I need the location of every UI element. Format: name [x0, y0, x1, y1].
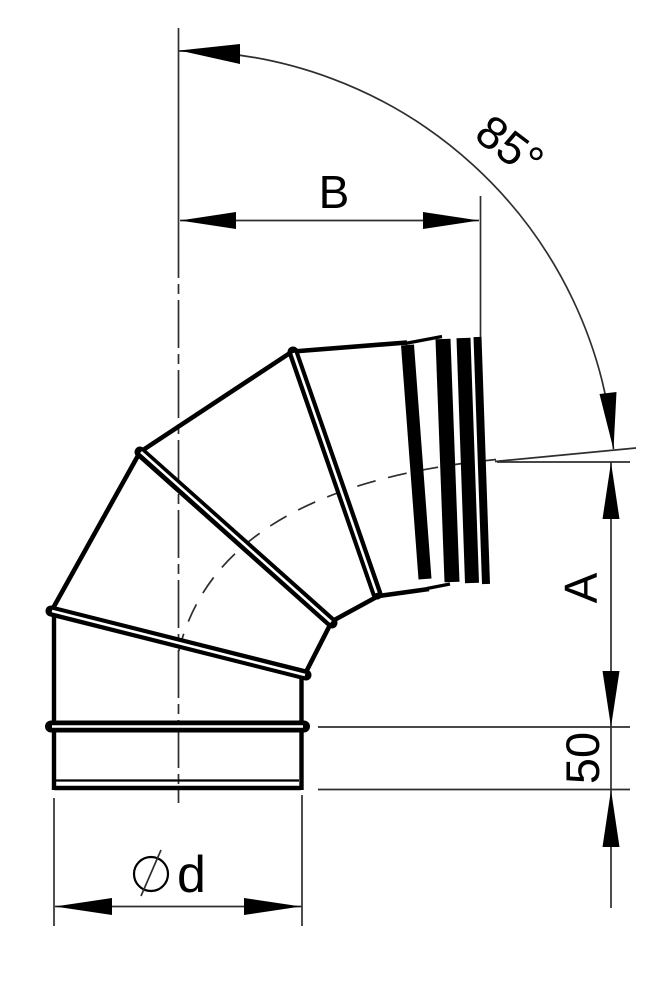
b-right-arrowhead: [423, 212, 479, 229]
label-a: A: [555, 572, 607, 603]
a-bottom-arrowhead: [603, 671, 620, 727]
label-50: 50: [556, 732, 609, 784]
pipe-elbow: [51, 337, 486, 791]
spigot-rib-1: [408, 345, 426, 579]
spigot-neck-bottom-edge: [427, 584, 450, 589]
label-d: d: [177, 846, 206, 904]
dim50-arrowhead: [603, 790, 620, 847]
a-top-arrowhead: [603, 463, 620, 520]
arc-start-arrowhead: [180, 44, 241, 64]
segment2-outer-edge: [52, 452, 140, 610]
d-left-arrowhead: [55, 898, 112, 915]
drawing-canvas: B 85° A 50 d: [0, 0, 665, 1000]
spigot-rib-4: [478, 337, 487, 584]
diameter-symbol-icon: [134, 850, 168, 896]
joint-seam-2-highlight: [141, 452, 331, 622]
arc-end-arrowhead: [600, 392, 617, 450]
outlet-axis-extension-line: [495, 448, 636, 462]
elbow-technical-drawing: B 85° A 50 d: [0, 0, 665, 1000]
label-angle: 85°: [467, 104, 554, 187]
spigot-rib-2: [443, 339, 452, 582]
dimension-lines: [54, 28, 636, 926]
angle-dimension-arc: [179, 51, 614, 449]
d-right-arrowhead: [244, 898, 301, 915]
segment2-inner-edge: [306, 624, 331, 673]
spigot-rib-3: [464, 338, 473, 583]
segment4-bottom-edge: [379, 589, 430, 596]
segment4-top-edge: [293, 343, 407, 352]
joint-seam-3-highlight: [294, 353, 377, 593]
b-left-arrowhead: [180, 212, 236, 229]
segment3-outer-edge: [140, 351, 293, 452]
label-b: B: [319, 166, 350, 218]
segment3-inner-edge: [333, 597, 377, 621]
